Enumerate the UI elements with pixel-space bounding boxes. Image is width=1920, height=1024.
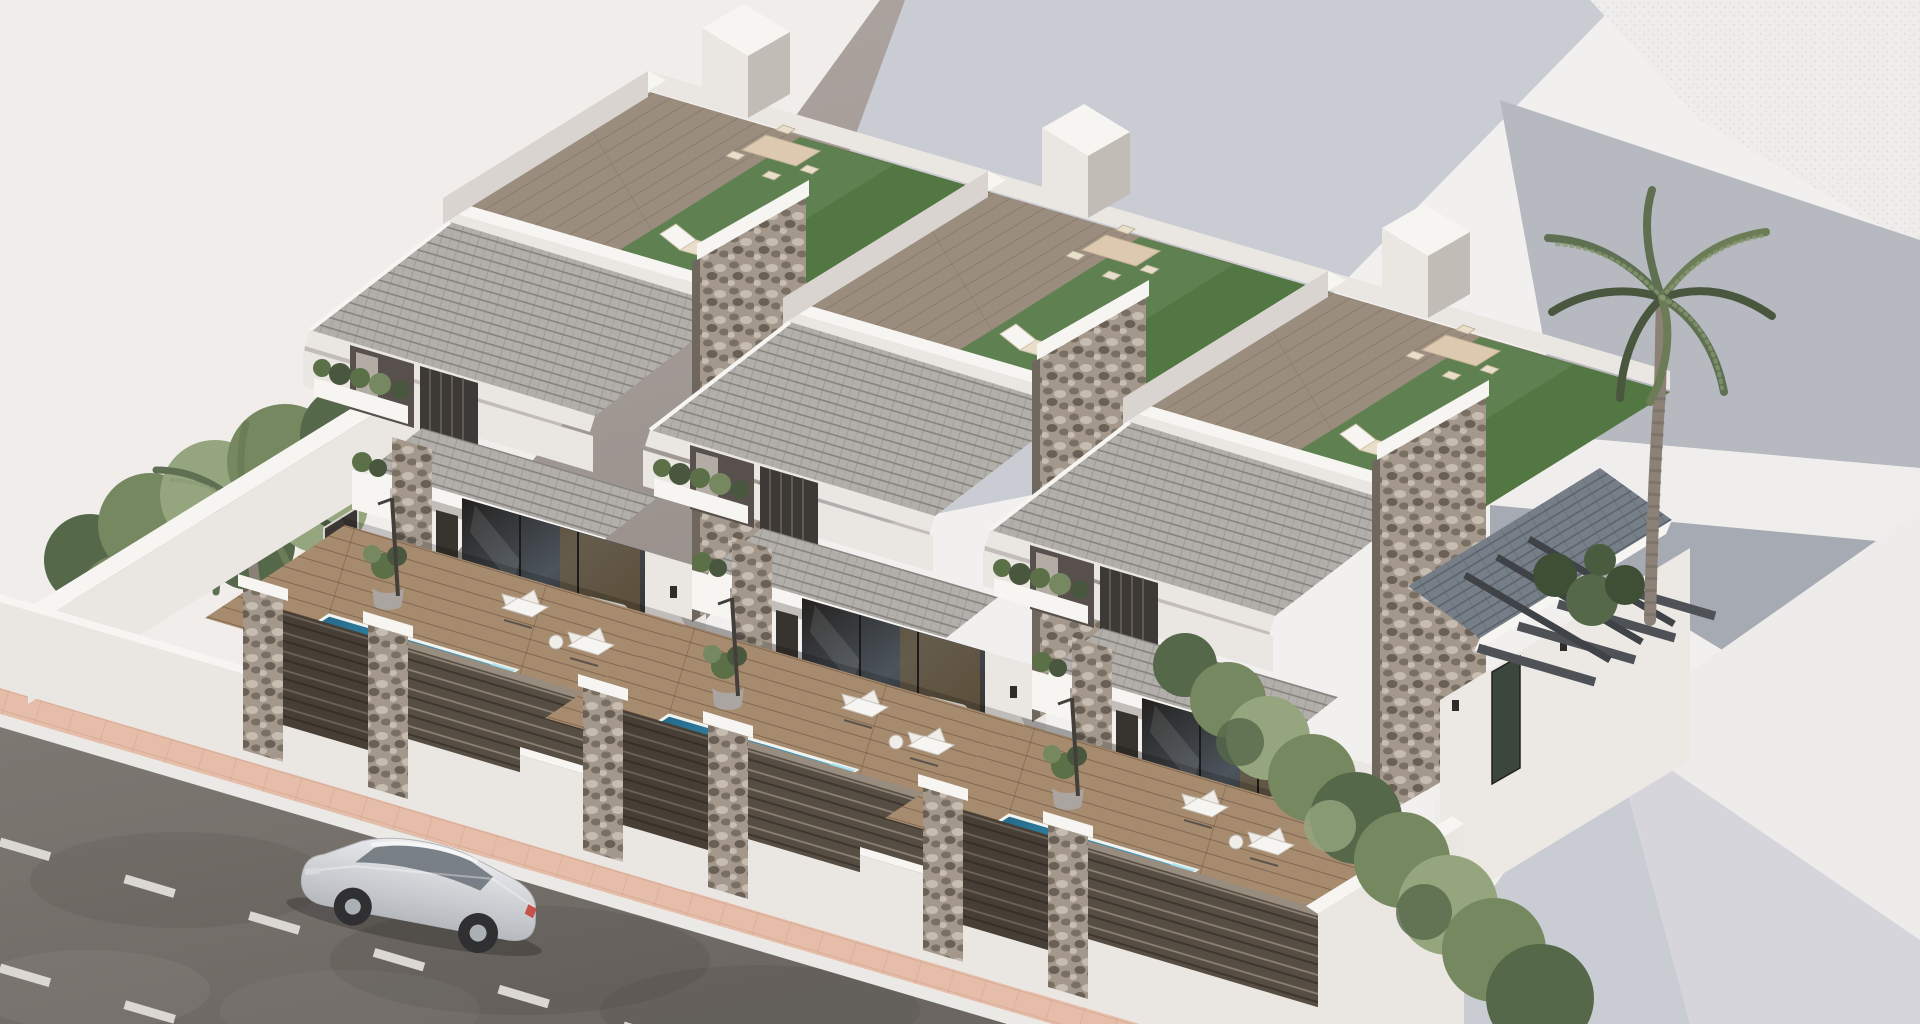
front-door bbox=[1492, 656, 1520, 784]
render-canvas bbox=[0, 0, 1920, 1024]
wall-lamp bbox=[1452, 700, 1459, 711]
villa-render-scene bbox=[0, 0, 1920, 1024]
